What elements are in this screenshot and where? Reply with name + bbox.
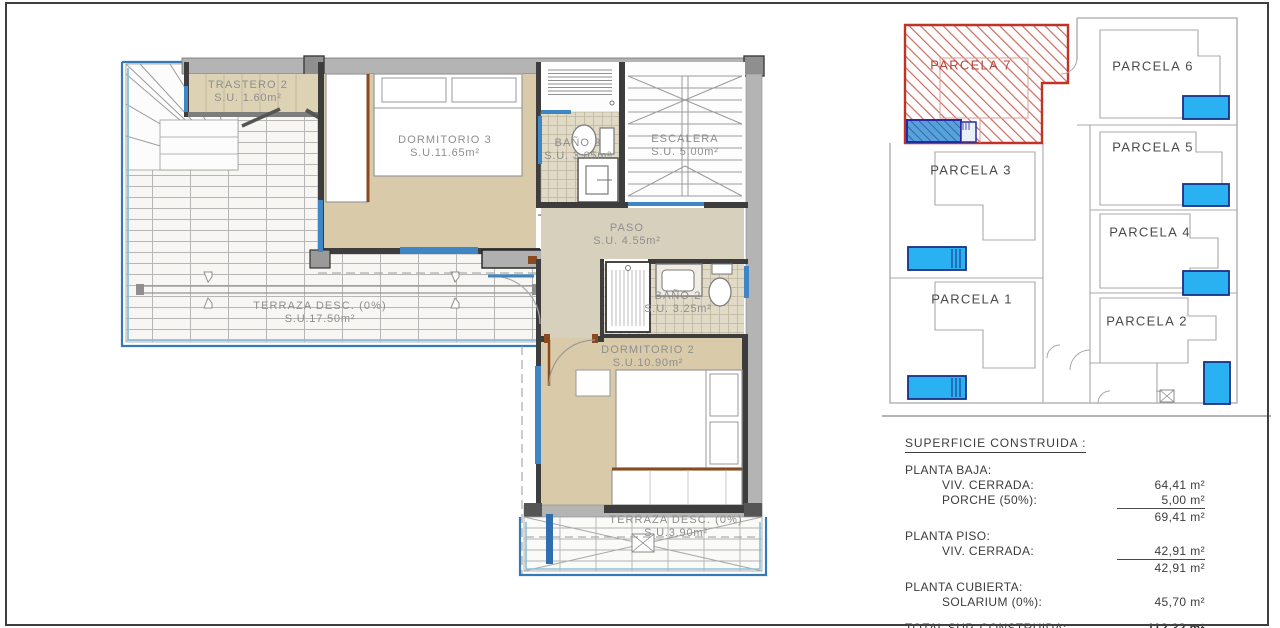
wardrobe-symbol <box>326 74 368 202</box>
summary-value: 112,32 m² <box>1117 622 1205 628</box>
room-name: PASO <box>593 222 661 235</box>
summary-value: 64,41 m² <box>1117 479 1205 492</box>
room-area: S.U.17.50m² <box>253 313 387 326</box>
room-name: BAÑO 2 <box>644 290 712 303</box>
window-mark <box>400 247 478 254</box>
window-mark <box>318 200 323 252</box>
summary-value: 69,41 m² <box>1117 511 1205 524</box>
room-label-trastero-2: TRASTERO 2 S.U. 1.60m² <box>208 79 288 105</box>
bed-symbol <box>374 74 522 176</box>
room-name: TERRAZA DESC. (0%) <box>253 300 387 313</box>
window-mark <box>535 366 541 464</box>
summary-value: 45,70 m² <box>1117 596 1205 609</box>
summary-row: SOLARIUM (0%): 45,70 m² <box>905 596 1205 609</box>
window-mark <box>541 110 571 114</box>
summary-label: PLANTA BAJA: <box>905 464 1117 477</box>
parcel-label-7: PARCELA 7 <box>930 58 1012 73</box>
room-area: S.U. 1.60m² <box>208 92 288 105</box>
summary-row: PLANTA PISO: <box>905 530 1205 543</box>
toilet-symbol <box>709 264 732 306</box>
floor-plan-sheet: TRASTERO 2 S.U. 1.60m² DORMITORIO 3 S.U.… <box>0 0 1280 628</box>
pool-symbol <box>1183 96 1229 119</box>
room-label-bano-2: BAÑO 2 S.U. 3.25m² <box>644 290 712 316</box>
room-area: S.U. 3.65m² <box>544 150 612 163</box>
window-mark <box>546 514 553 564</box>
room-area: S.U. 5.00m² <box>651 146 719 159</box>
pool-symbol <box>1183 271 1229 295</box>
room-name: BAÑO 3 <box>544 137 612 150</box>
room-name: TERRAZA DESC. (0%) <box>609 514 743 527</box>
window-mark <box>184 86 188 112</box>
wardrobe-symbol <box>612 469 742 505</box>
parcel-label-4: PARCELA 4 <box>1109 225 1191 240</box>
room-label-terraza-grande: TERRAZA DESC. (0%) S.U.17.50m² <box>253 300 387 326</box>
room-label-bano-3: BAÑO 3 S.U. 3.65m² <box>544 137 612 163</box>
room-area: S.U.10.90m² <box>601 357 695 370</box>
bedside-table-symbol <box>576 370 610 396</box>
room-name: ESCALERA <box>651 133 719 146</box>
room-label-dormitorio-2: DORMITORIO 2 S.U.10.90m² <box>601 344 695 370</box>
room-area: S.U.3.90m² <box>609 527 743 540</box>
parcel-label-6: PARCELA 6 <box>1112 59 1194 74</box>
room-label-paso: PASO S.U. 4.55m² <box>593 222 661 248</box>
summary-label: TOTAL SUP. CONSTRUIDA: <box>905 622 1117 628</box>
room-name: DORMITORIO 2 <box>601 344 695 357</box>
summary-value: 42,91 m² <box>1117 562 1205 575</box>
pool-symbol <box>908 247 966 270</box>
room-area: S.U. 4.55m² <box>593 235 661 248</box>
summary-label: PLANTA CUBIERTA: <box>905 581 1117 594</box>
parcel-label-3: PARCELA 3 <box>930 163 1012 178</box>
pool-symbol <box>1183 184 1229 206</box>
room-name: DORMITORIO 3 <box>398 134 492 147</box>
pool-symbol <box>908 376 966 399</box>
window-mark <box>538 116 542 164</box>
summary-row: VIV. CERRADA: 42,91 m² <box>905 545 1205 560</box>
window-mark <box>744 266 749 298</box>
summary-title: SUPERFICIE CONSTRUIDA : <box>905 437 1086 453</box>
summary-row: 42,91 m² <box>905 562 1205 575</box>
room-label-terraza-inferior: TERRAZA DESC. (0%) S.U.3.90m² <box>609 514 743 540</box>
summary-row: PLANTA CUBIERTA: <box>905 581 1205 594</box>
parcel-7-highlight <box>905 25 1068 143</box>
pool-symbol <box>1204 362 1230 404</box>
parcel-label-5: PARCELA 5 <box>1112 140 1194 155</box>
site-map-drawing <box>882 18 1271 416</box>
highlighted-dwelling-footprint <box>907 120 961 142</box>
room-bano-3 <box>538 62 619 204</box>
sink-symbol <box>578 158 618 202</box>
parcel-label-2: PARCELA 2 <box>1106 314 1188 329</box>
summary-row-total: TOTAL SUP. CONSTRUIDA: 112,32 m² <box>905 622 1205 628</box>
summary-value: 5,00 m² <box>1117 494 1205 509</box>
summary-row: 69,41 m² <box>905 511 1205 524</box>
room-name: TRASTERO 2 <box>208 79 288 92</box>
summary-label: PLANTA PISO: <box>905 530 1117 543</box>
summary-label: VIV. CERRADA: <box>905 545 1117 558</box>
summary-row: PLANTA BAJA: <box>905 464 1205 477</box>
bed-symbol <box>616 370 742 468</box>
summary-row: PORCHE (50%): 5,00 m² <box>905 494 1205 509</box>
summary-label: SOLARIUM (0%): <box>905 596 1117 609</box>
parcel-label-1: PARCELA 1 <box>931 292 1013 307</box>
room-label-escalera: ESCALERA S.U. 5.00m² <box>651 133 719 159</box>
room-area: S.U. 3.25m² <box>644 303 712 316</box>
room-area: S.U.11.65m² <box>398 147 492 160</box>
stair-opening-mark <box>625 202 705 206</box>
room-label-dormitorio-3: DORMITORIO 3 S.U.11.65m² <box>398 134 492 160</box>
summary-label: PORCHE (50%): <box>905 494 1117 507</box>
summary-row: VIV. CERRADA: 64,41 m² <box>905 479 1205 492</box>
built-area-summary: SUPERFICIE CONSTRUIDA : PLANTA BAJA: VIV… <box>905 437 1205 628</box>
summary-label: VIV. CERRADA: <box>905 479 1117 492</box>
summary-value: 42,91 m² <box>1117 545 1205 560</box>
